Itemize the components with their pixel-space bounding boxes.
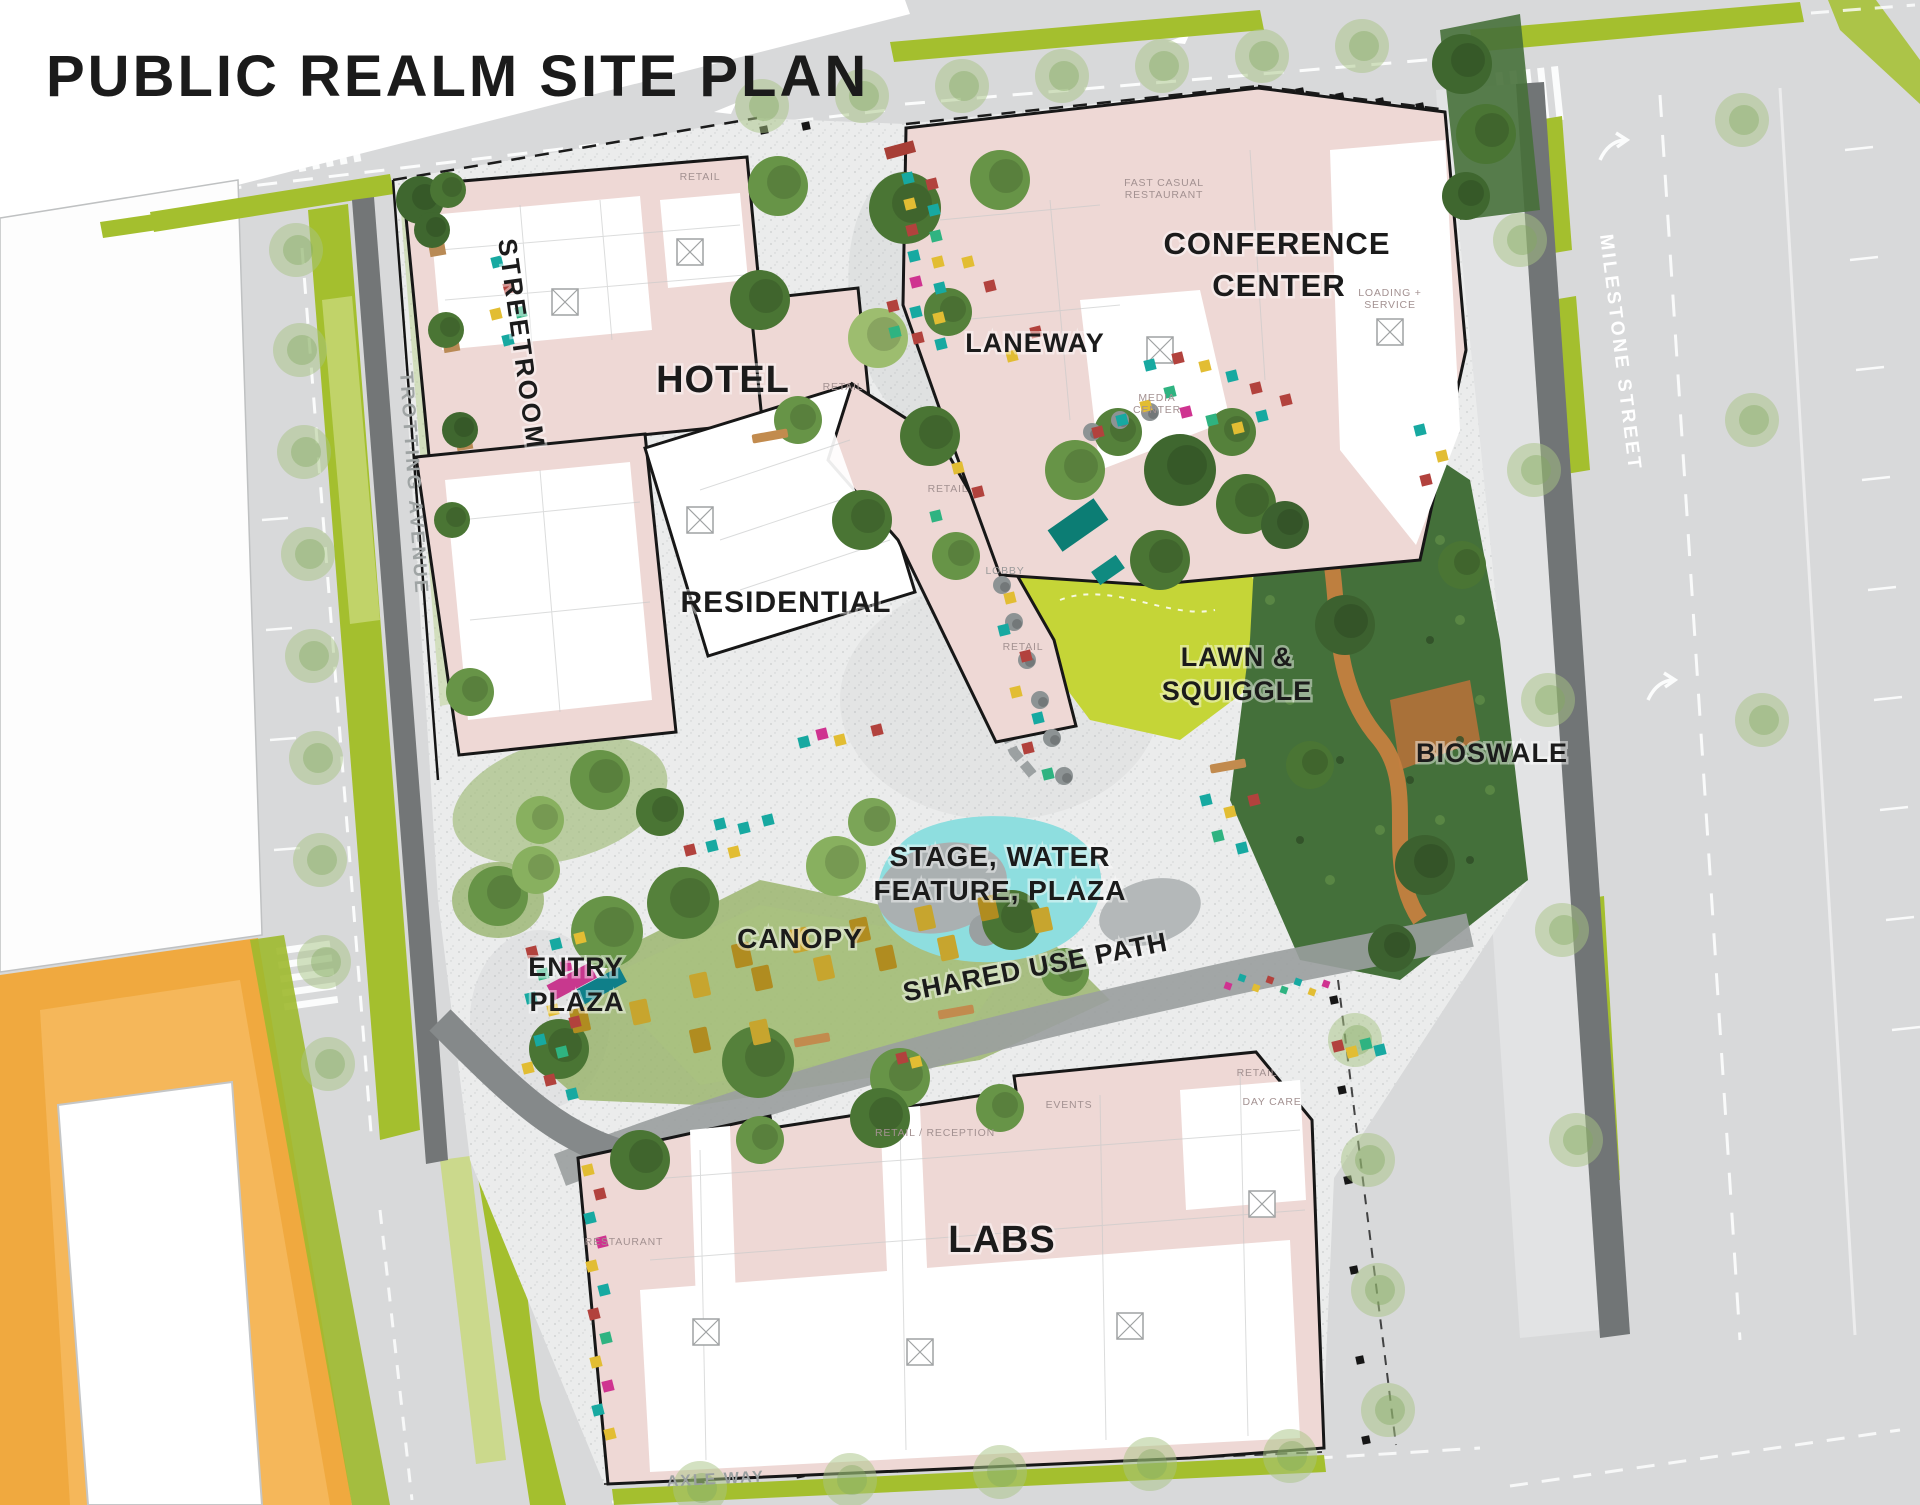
label-retail-hotel-east: RETAIL <box>823 381 864 393</box>
label-entry-line1: ENTRY <box>528 952 624 982</box>
label-canopy: CANOPY <box>737 923 863 954</box>
west-block <box>0 180 262 972</box>
label-laneway: LANEWAY <box>965 328 1105 358</box>
label-labs: LABS <box>948 1219 1055 1261</box>
site-plan-drawing: PUBLIC REALM SITE PLAN HOTEL RESIDENTIAL… <box>0 0 1920 1505</box>
label-day-care: DAY CARE <box>1242 1096 1301 1108</box>
label-loading-line1: LOADING + <box>1358 287 1422 299</box>
label-restaurant: RESTAURANT <box>585 1236 663 1248</box>
label-retail-wing: RETAIL <box>1003 641 1044 653</box>
label-loading-line2: SERVICE <box>1364 299 1416 311</box>
label-retail-hotel-top: RETAIL <box>680 171 721 183</box>
page-title: PUBLIC REALM SITE PLAN <box>46 44 869 109</box>
label-conference-line2: CENTER <box>1212 268 1345 303</box>
label-hotel: HOTEL <box>656 359 790 401</box>
site-plan-canvas: PUBLIC REALM SITE PLAN HOTEL RESIDENTIAL… <box>0 0 1920 1505</box>
label-stage-line2: FEATURE, PLAZA <box>873 875 1126 906</box>
label-stage-line1: STAGE, WATER <box>890 841 1111 872</box>
label-media-line2: CENTER <box>1133 404 1181 416</box>
label-entry-line2: PLAZA <box>530 987 625 1017</box>
label-lobby: LOBBY <box>985 565 1024 577</box>
label-residential: RESIDENTIAL <box>680 586 891 619</box>
label-retail-reception: RETAIL / RECEPTION <box>875 1127 995 1139</box>
label-bioswale: BIOSWALE <box>1416 738 1568 768</box>
label-events: EVENTS <box>1046 1099 1093 1111</box>
label-retail-labs: RETAIL <box>1237 1067 1278 1079</box>
southwest-building <box>58 1082 262 1505</box>
label-fast-casual-line2: RESTAURANT <box>1125 189 1203 201</box>
label-conference-line1: CONFERENCE <box>1163 226 1390 261</box>
label-retail-residential: RETAIL <box>928 483 969 495</box>
label-lawn-line1: LAWN & <box>1181 642 1293 672</box>
label-fast-casual-line1: FAST CASUAL <box>1124 177 1204 189</box>
label-media-line1: MEDIA <box>1138 392 1175 404</box>
label-lawn-line2: SQUIGGLE <box>1162 676 1313 706</box>
